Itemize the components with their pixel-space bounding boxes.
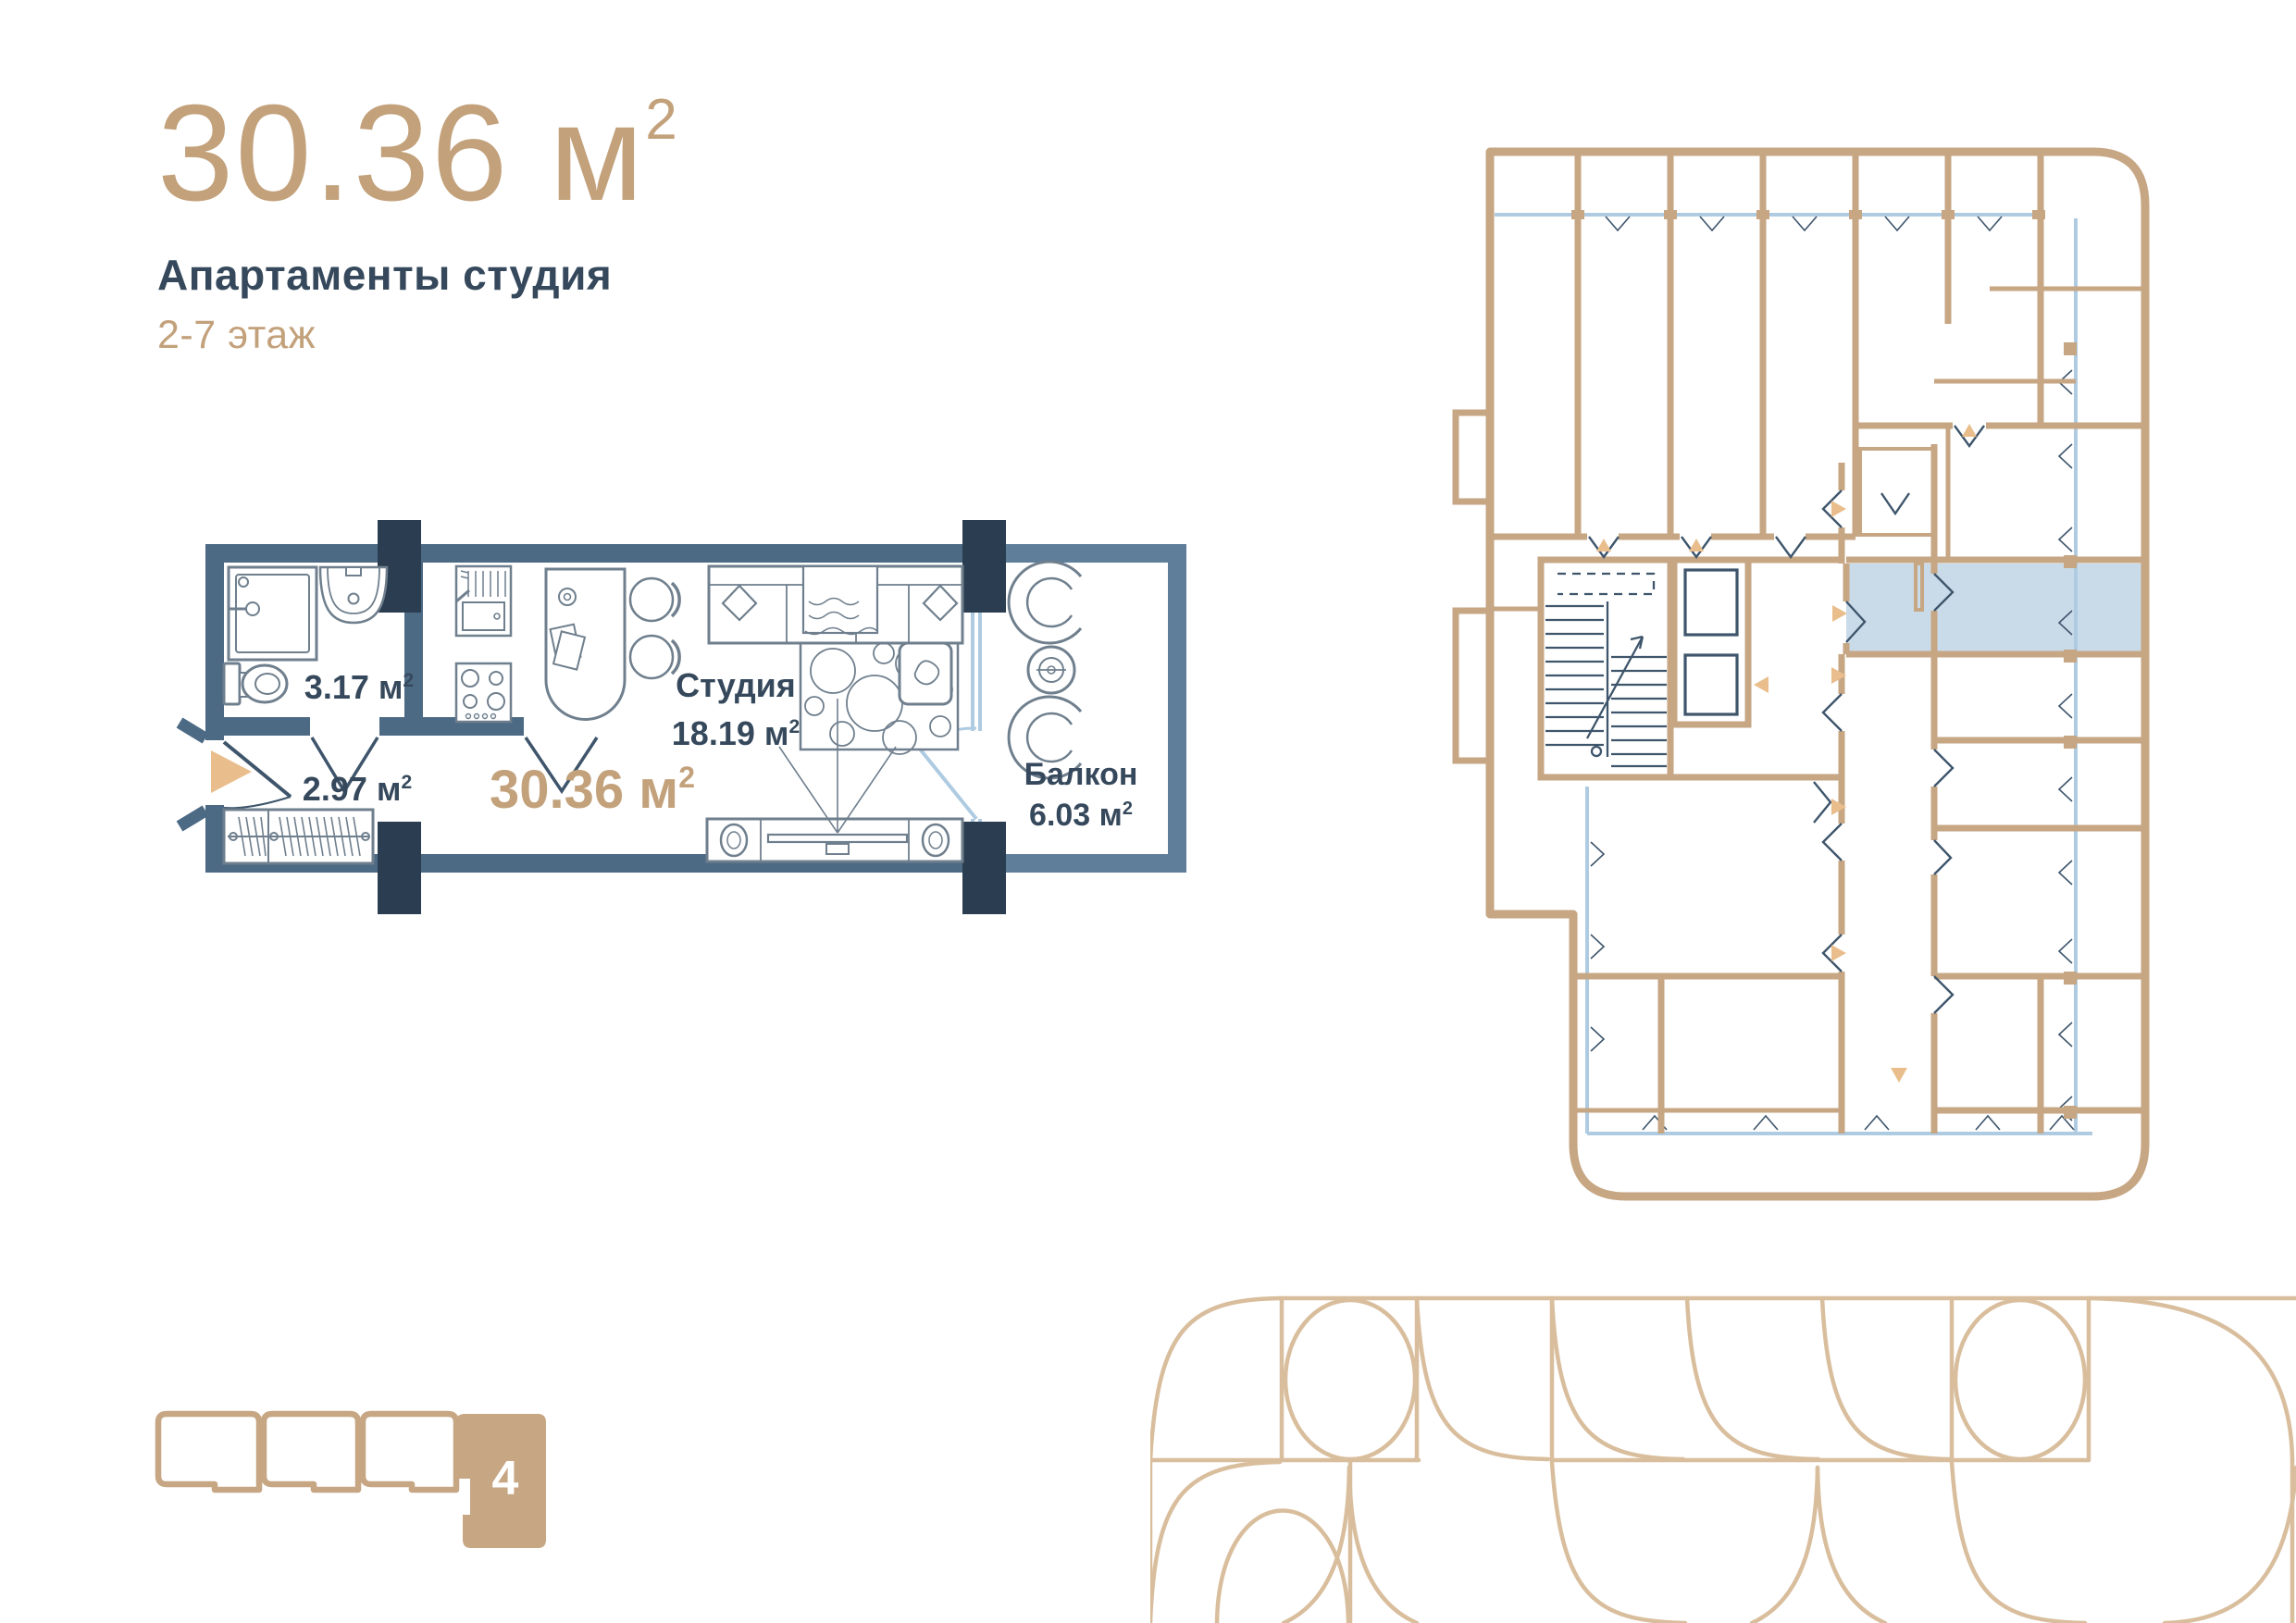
total-area-label: 30.36 м2 xyxy=(490,760,695,820)
entry-funnel-walls xyxy=(180,723,205,826)
armchair-icon xyxy=(900,643,951,704)
left-bay xyxy=(1456,413,1490,502)
total-area-title-sup: 2 xyxy=(645,88,679,152)
section-block xyxy=(363,1414,456,1490)
balcony-name-label: Балкон xyxy=(1024,757,1138,792)
wardrobe-icon xyxy=(224,810,373,863)
plant-icon xyxy=(721,824,747,856)
studio-area-label: 18.19 м2 xyxy=(672,714,800,752)
floors-label: 2-7 этаж xyxy=(157,313,679,358)
building-sections xyxy=(158,1414,456,1490)
page-title: 30.36 м2 xyxy=(157,85,679,222)
entrance-door-arc xyxy=(224,797,291,808)
apartment-brochure-page: 30.36 м2 Апартаменты студия 2-7 этаж xyxy=(0,0,2296,1623)
kitchen-units xyxy=(456,566,511,722)
section-block xyxy=(158,1414,259,1490)
property-type-label: Апартаменты студия xyxy=(157,250,679,300)
bathroom-area-label: 3.17 м2 xyxy=(304,668,414,706)
plant-icon xyxy=(923,824,949,856)
building-position-indicator: 4 xyxy=(148,1402,560,1559)
unit-floor-plan: 3.17 м2 2.97 м2 Студия 18.19 м2 30.36 м2… xyxy=(194,514,1194,925)
balcony-chair-icon xyxy=(1009,562,1081,643)
highlighted-unit[interactable] xyxy=(1846,564,2141,654)
left-bay xyxy=(1456,611,1490,761)
section-number-label: 4 xyxy=(492,1452,519,1505)
door-swings xyxy=(1589,426,1984,1013)
kitchen-island xyxy=(546,569,679,720)
toilet-icon xyxy=(224,663,240,704)
stairs-icon xyxy=(1545,574,1667,766)
balcony-furniture xyxy=(1009,562,1081,778)
entrance-arrow-icon xyxy=(211,750,252,793)
pattern-arcs xyxy=(1150,1298,2296,1623)
facade-glazing xyxy=(1495,215,2092,1134)
tv-icon xyxy=(768,835,907,842)
total-area-title: 30.36 м xyxy=(157,77,645,229)
elevators-icon xyxy=(1685,570,1737,714)
bar-chair-icon xyxy=(630,636,673,678)
decorative-pattern xyxy=(1150,1292,2296,1623)
bar-chair-icon xyxy=(630,578,673,621)
hallway-area-label: 2.97 м2 xyxy=(303,770,412,808)
floor-plan-overview xyxy=(1448,139,2170,1221)
section-block xyxy=(264,1414,358,1490)
header: 30.36 м2 Апартаменты студия 2-7 этаж xyxy=(157,85,679,358)
studio-name-label: Студия xyxy=(676,666,796,704)
balcony-area-label: 6.03 м2 xyxy=(1029,798,1133,833)
